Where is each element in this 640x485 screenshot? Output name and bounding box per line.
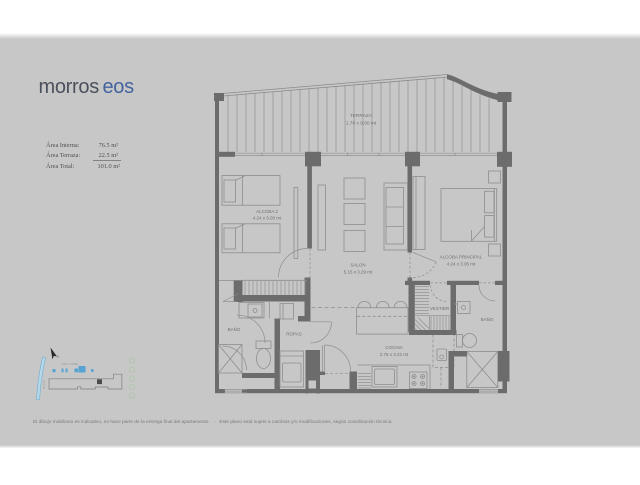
svg-text:N: N xyxy=(57,355,59,359)
svg-text:morroseos: morroseos xyxy=(39,76,135,98)
svg-text:ROPAS: ROPAS xyxy=(286,332,301,337)
svg-text:PLAYA: PLAYA xyxy=(42,380,46,389)
svg-text:ALCOBA 2: ALCOBA 2 xyxy=(256,209,278,214)
svg-text:2.76 x 3.22 mt: 2.76 x 3.22 mt xyxy=(380,352,409,357)
svg-text:TERRAZA: TERRAZA xyxy=(350,113,373,119)
svg-text:1.70 x 9.60 mt: 1.70 x 9.60 mt xyxy=(346,121,377,127)
svg-text:SALON: SALON xyxy=(350,263,365,268)
svg-text:El dibujo mobiliario es indica: El dibujo mobiliario es indicativo, no h… xyxy=(33,419,393,425)
svg-text:MAR CARIBE: MAR CARIBE xyxy=(62,362,79,366)
svg-text:22.5 m²: 22.5 m² xyxy=(99,152,118,159)
svg-text:Área Total:: Área Total: xyxy=(46,162,75,170)
svg-text:4.24 x 3.05 mt: 4.24 x 3.05 mt xyxy=(447,262,476,267)
svg-text:ALCOBA PRINCIPAL: ALCOBA PRINCIPAL xyxy=(440,255,483,260)
svg-text:Área Terraza:: Área Terraza: xyxy=(46,151,80,159)
svg-text:101.0 m²: 101.0 m² xyxy=(97,163,120,170)
svg-text:4.24 x 3.00 mt: 4.24 x 3.00 mt xyxy=(253,216,282,221)
svg-text:BAÑO: BAÑO xyxy=(481,316,494,322)
svg-text:5.16 x 3.29 mt: 5.16 x 3.29 mt xyxy=(344,270,373,275)
svg-text:COCINA: COCINA xyxy=(385,345,403,350)
svg-text:76.5 m²: 76.5 m² xyxy=(99,142,118,149)
svg-text:VESTIER: VESTIER xyxy=(430,306,450,311)
svg-text:BAÑO: BAÑO xyxy=(228,326,241,332)
svg-text:Área Interna:: Área Interna: xyxy=(46,141,80,149)
